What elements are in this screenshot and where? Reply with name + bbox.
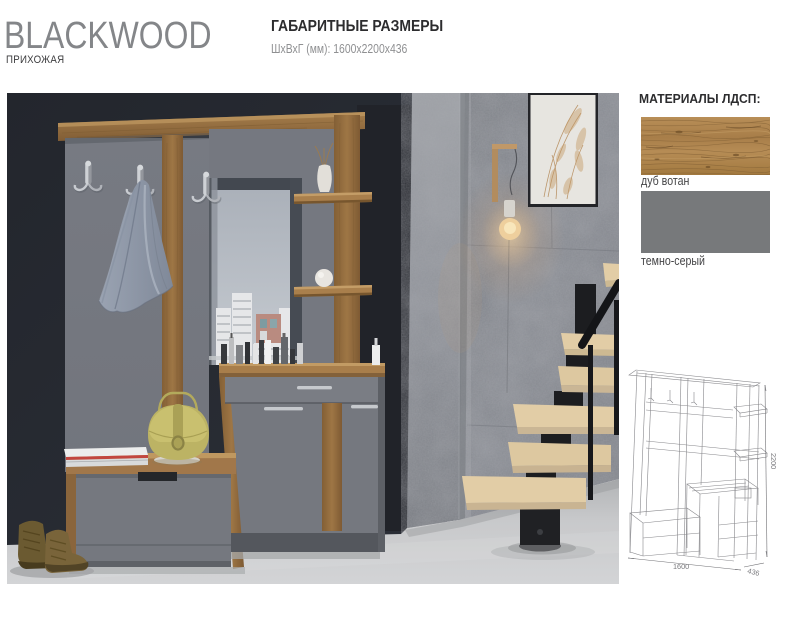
svg-text:1600: 1600: [673, 562, 689, 571]
svg-text:2200: 2200: [769, 453, 778, 469]
svg-text:436: 436: [747, 566, 761, 578]
